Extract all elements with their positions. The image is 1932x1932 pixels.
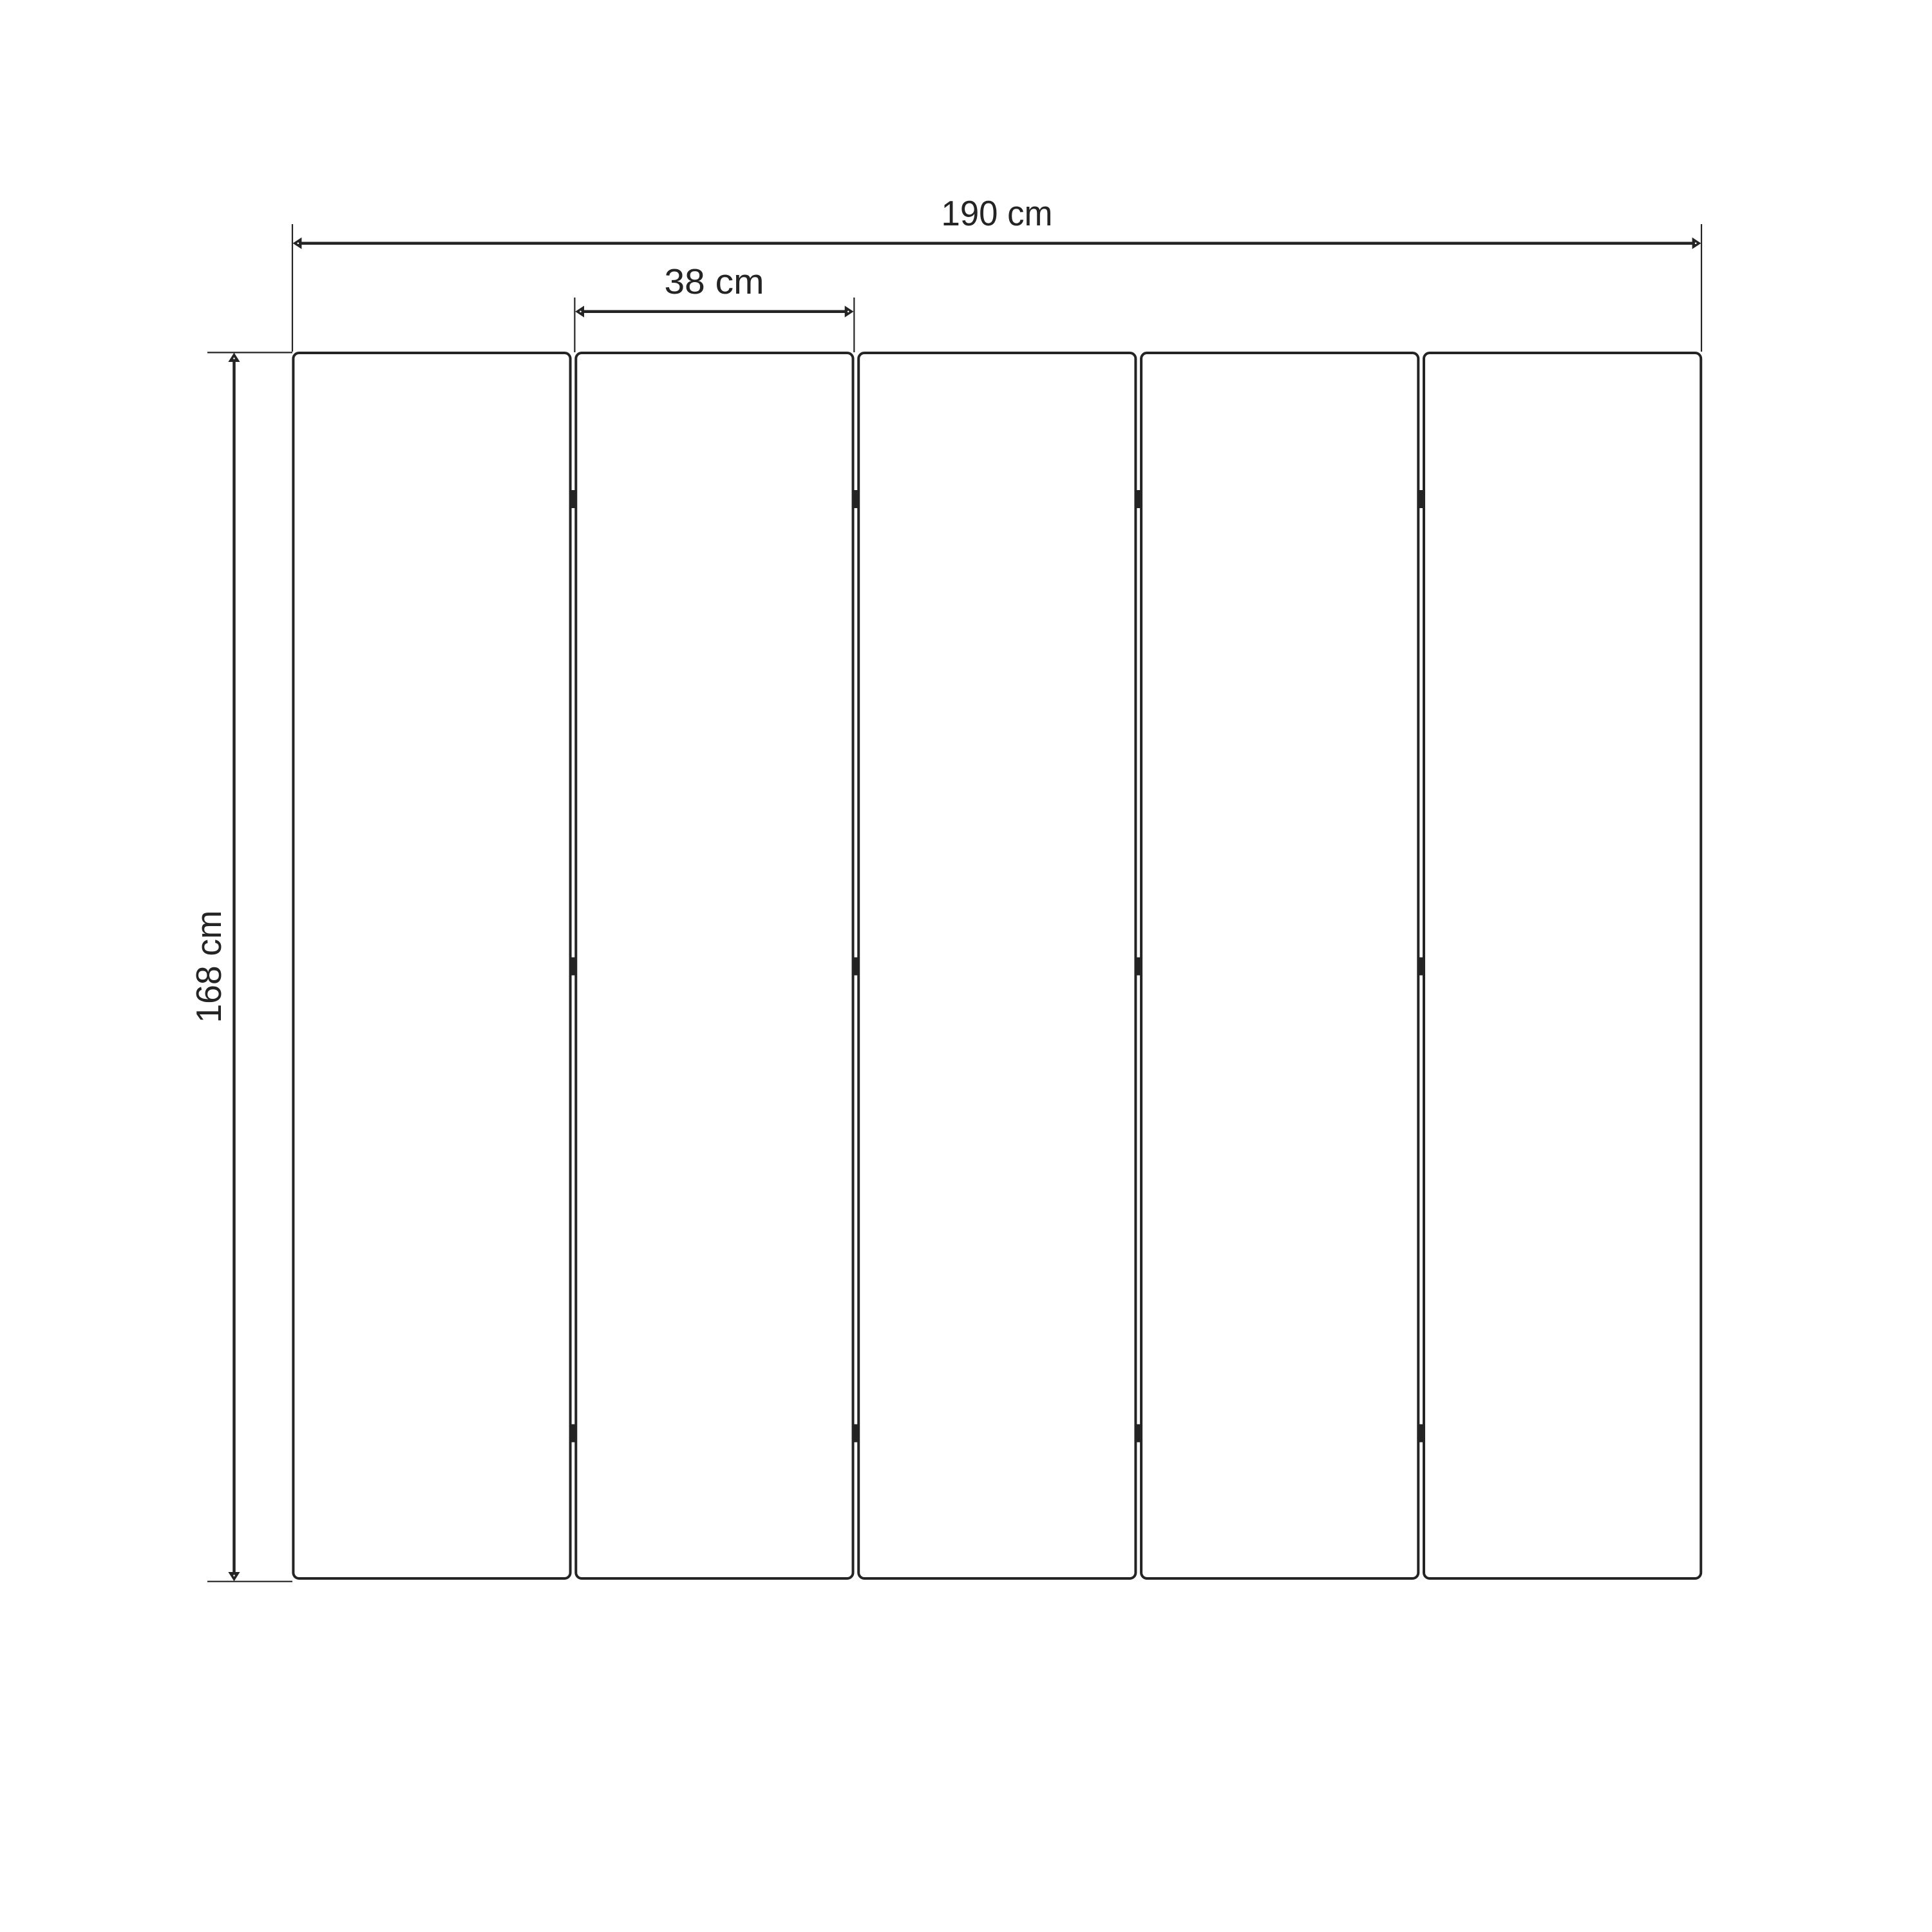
svg-text:168 cm: 168 cm	[189, 911, 229, 1023]
svg-text:190 cm: 190 cm	[942, 193, 1053, 233]
svg-text:38 cm: 38 cm	[665, 261, 764, 301]
